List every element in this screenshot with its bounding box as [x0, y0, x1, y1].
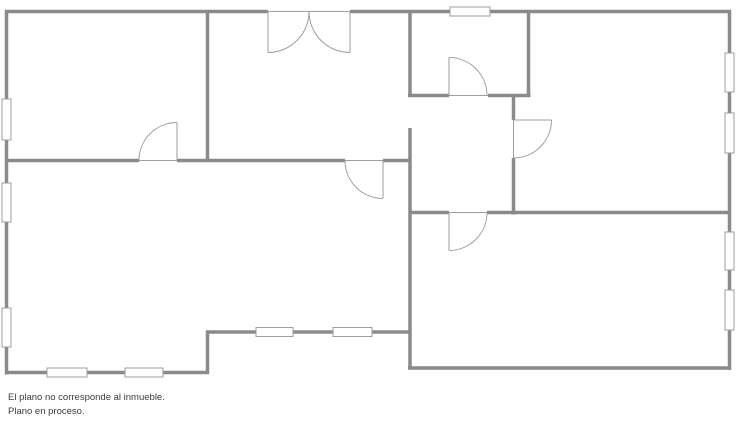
door-swing-arc [514, 120, 552, 158]
window [256, 328, 293, 337]
window [725, 113, 734, 153]
window [47, 368, 87, 377]
window [2, 308, 11, 347]
window [2, 183, 11, 222]
window [333, 328, 372, 337]
windows-group [2, 7, 734, 377]
floor-plan-page: El plano no corresponde al inmueble. Pla… [0, 0, 736, 424]
window [725, 290, 734, 330]
floor-plan-drawing [0, 0, 736, 424]
window [725, 232, 734, 270]
window [450, 7, 490, 16]
door-openings-group [139, 12, 514, 213]
plan-disclaimer: El plano no corresponde al inmueble. Pla… [8, 391, 165, 418]
window [725, 53, 734, 92]
door-swing-arc [309, 12, 350, 53]
window [2, 99, 11, 140]
disclaimer-line-1: El plano no corresponde al inmueble. [8, 391, 165, 405]
door-swing-arc [139, 123, 177, 161]
window [125, 368, 163, 377]
disclaimer-line-2: Plano en proceso. [8, 405, 165, 419]
door-swing-arc [449, 213, 487, 251]
door-swing-arc [345, 161, 383, 199]
door-swing-arc [449, 58, 487, 96]
walls-group [5, 10, 731, 375]
door-swing-arc [268, 12, 309, 53]
doors-group [139, 12, 552, 251]
